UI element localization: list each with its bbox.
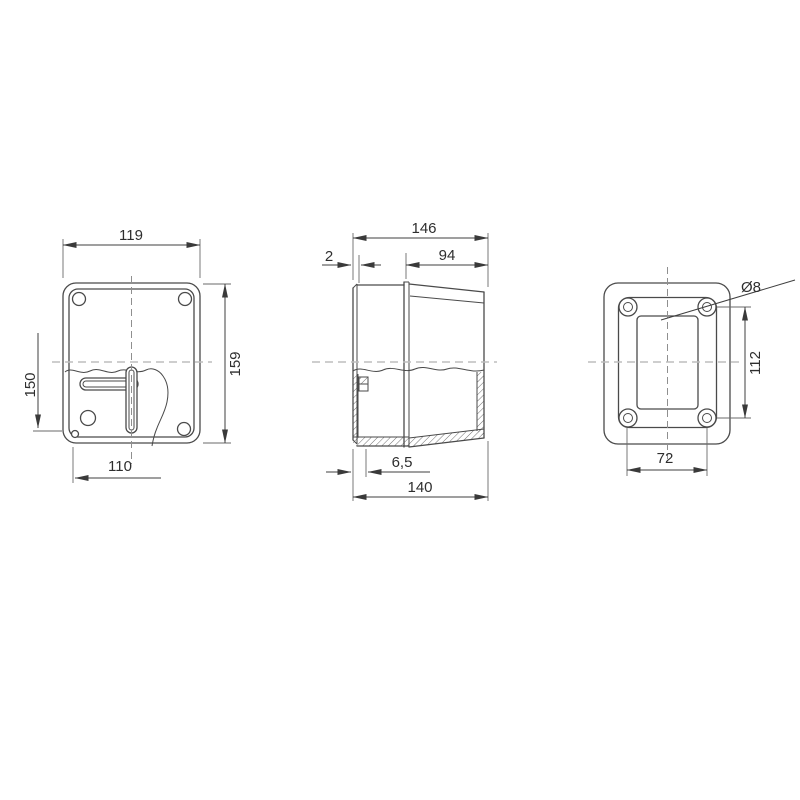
front-fixing-hole-bottom-left [72, 431, 79, 438]
dim-label-side-depth-total: 146 [411, 220, 436, 237]
front-screw-top-right [179, 293, 192, 306]
side-dim-depth-total: 146 [353, 220, 488, 287]
dim-label-side-base-depth: 140 [407, 479, 432, 496]
back-view: Ø8 112 72 [588, 267, 795, 476]
front-dim-fixing-horizontal: 110 [73, 447, 161, 483]
front-dim-height: 159 [203, 284, 244, 443]
side-dim-base-depth: 140 [353, 441, 488, 501]
front-dim-fixing-vertical: 150 [22, 333, 62, 431]
section-base-bottom-wall [409, 429, 484, 447]
dim-label-side-cover-depth: 94 [439, 247, 456, 264]
back-hole-bottom-left [619, 409, 637, 427]
side-base-top-inner-edge [410, 296, 484, 303]
enclosure-dimension-drawing: 119 159 150 110 [0, 0, 800, 800]
side-break-line [353, 367, 484, 371]
side-dim-cover-depth: 94 [406, 247, 488, 279]
side-view: 146 2 94 6,5 140 [312, 220, 497, 501]
dim-label-side-base-offset: 6,5 [392, 454, 413, 471]
dim-label-front-fixing-vertical: 150 [22, 372, 39, 397]
front-screw-bottom-right [178, 423, 191, 436]
dim-label-front-height: 159 [227, 351, 244, 376]
side-dim-cover-lip: 2 [322, 248, 381, 283]
technical-drawing-canvas: 119 159 150 110 [0, 0, 800, 800]
dim-label-back-hole-diameter: Ø8 [741, 279, 761, 296]
front-dim-width: 119 [63, 227, 200, 278]
dim-label-back-hole-pitch-vertical: 112 [747, 351, 764, 375]
side-section-lip-detail [359, 377, 368, 391]
section-right-wall [477, 372, 484, 438]
front-screw-top-left [73, 293, 86, 306]
back-hole-bottom-right [698, 409, 716, 427]
front-fixing-hole-round [81, 411, 96, 426]
dim-label-side-cover-lip: 2 [325, 248, 333, 265]
dim-label-back-hole-pitch-horizontal: 72 [657, 450, 674, 467]
dim-label-front-width: 119 [119, 227, 143, 244]
lip-detail-hatch [359, 377, 368, 384]
back-hole-top-left [619, 298, 637, 316]
back-hole-top-right [698, 298, 716, 316]
front-view: 119 159 150 110 [22, 227, 244, 483]
dim-label-front-fixing-horizontal: 110 [108, 458, 132, 475]
side-base-top-edge [409, 284, 484, 292]
side-cover-chamfer-top [353, 284, 357, 288]
section-cover-bottom-wall [353, 437, 409, 446]
